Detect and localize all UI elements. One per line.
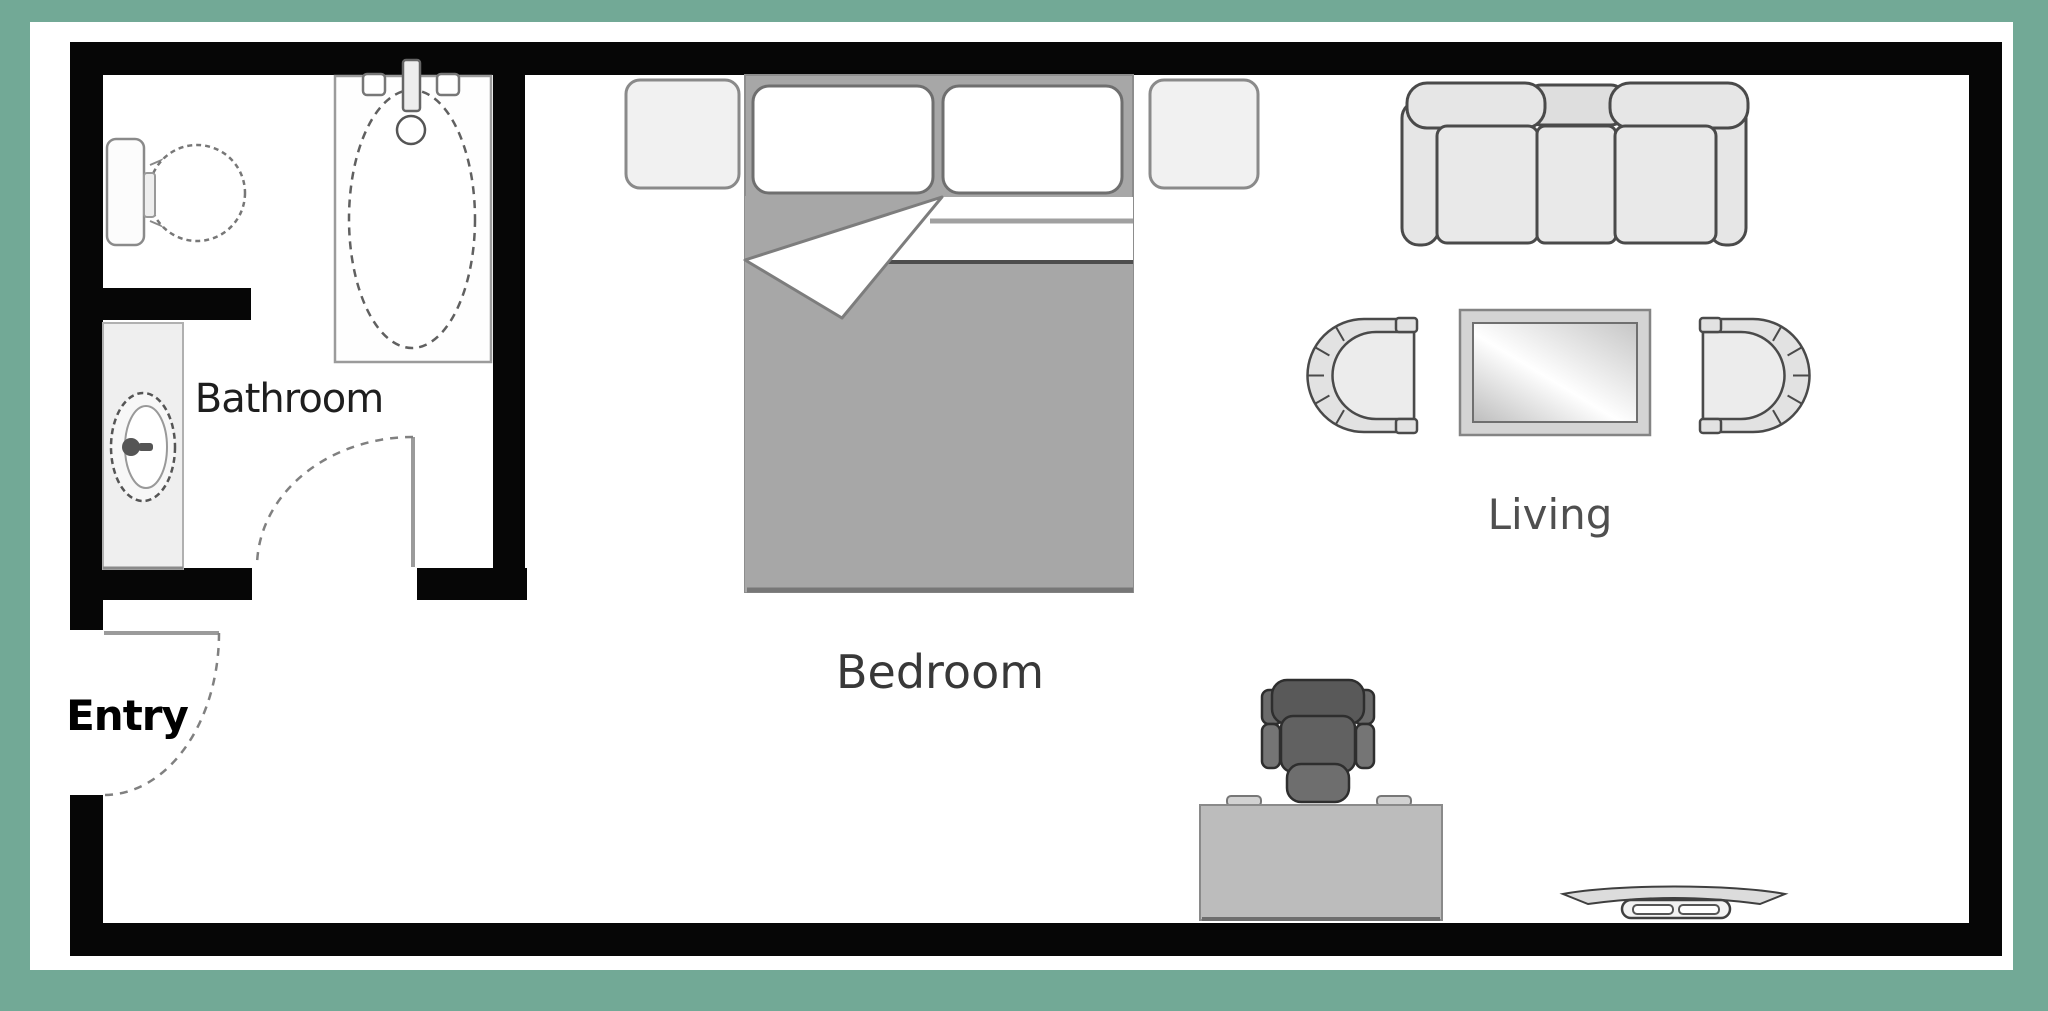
nightstand-icon: [1150, 80, 1258, 188]
bedroom-label: Bedroom: [836, 645, 1044, 699]
floor-plan: Bathroom Entry Bedroom Living: [0, 0, 2048, 1011]
bathroom-label: Bathroom: [195, 376, 383, 422]
tub-tap-icon: [363, 74, 385, 95]
wall-bathroom-right: [493, 75, 525, 600]
entry-label: Entry: [66, 691, 188, 740]
tub-tap-icon: [437, 74, 459, 95]
tub-faucet-icon: [403, 60, 420, 111]
desk-icon: [1200, 796, 1442, 920]
armchair-icon: [1700, 318, 1810, 433]
sink-icon: [103, 323, 183, 569]
wall-left-lower: [70, 795, 103, 956]
bed-blanket: [745, 262, 1133, 592]
bathtub-icon: [335, 60, 491, 362]
floor-plan-canvas: Bathroom Entry Bedroom Living: [0, 0, 2048, 1011]
living-label: Living: [1488, 490, 1613, 539]
wall-right: [1969, 42, 2002, 956]
sofa-icon: [1402, 83, 1748, 245]
sink-faucet-icon: [122, 438, 140, 456]
wall-bottom: [70, 923, 2002, 956]
toilet-icon: [107, 139, 245, 245]
wall-top: [70, 42, 2002, 75]
coffee-table-icon: [1460, 310, 1650, 435]
tub-drain-icon: [397, 116, 425, 144]
wall-bathroom-bottom-right: [417, 568, 527, 600]
wall-left-upper: [70, 42, 103, 630]
nightstand-icon: [626, 80, 739, 188]
wall-bathroom-stub: [103, 288, 251, 320]
table-glass-top: [1473, 323, 1637, 422]
pillow-icon: [943, 86, 1122, 193]
double-bed-icon: [745, 75, 1133, 592]
wall-bathroom-bottom-left: [103, 568, 252, 600]
pillow-icon: [753, 86, 933, 193]
armchair-icon: [1308, 318, 1418, 433]
